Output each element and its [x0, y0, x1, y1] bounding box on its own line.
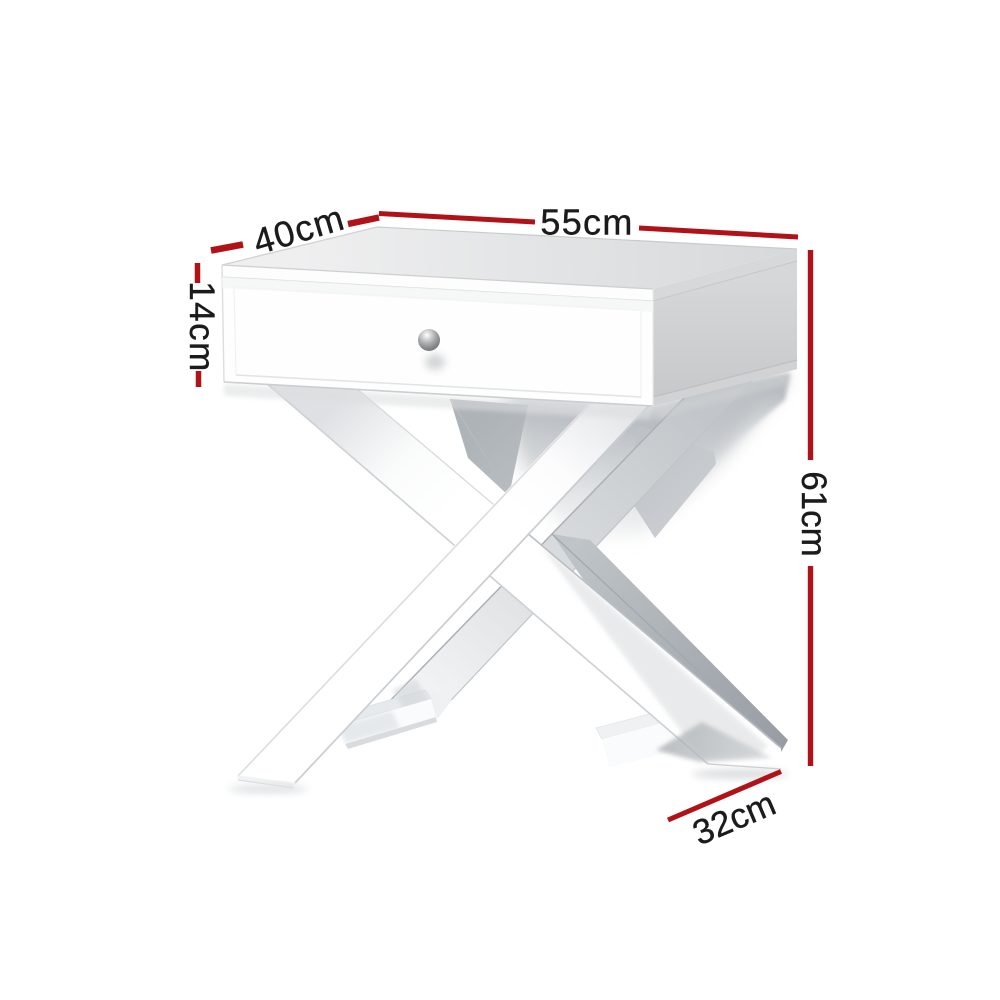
- svg-text:14cm: 14cm: [182, 281, 221, 373]
- svg-text:61cm: 61cm: [794, 471, 833, 557]
- svg-text:55cm: 55cm: [540, 202, 633, 243]
